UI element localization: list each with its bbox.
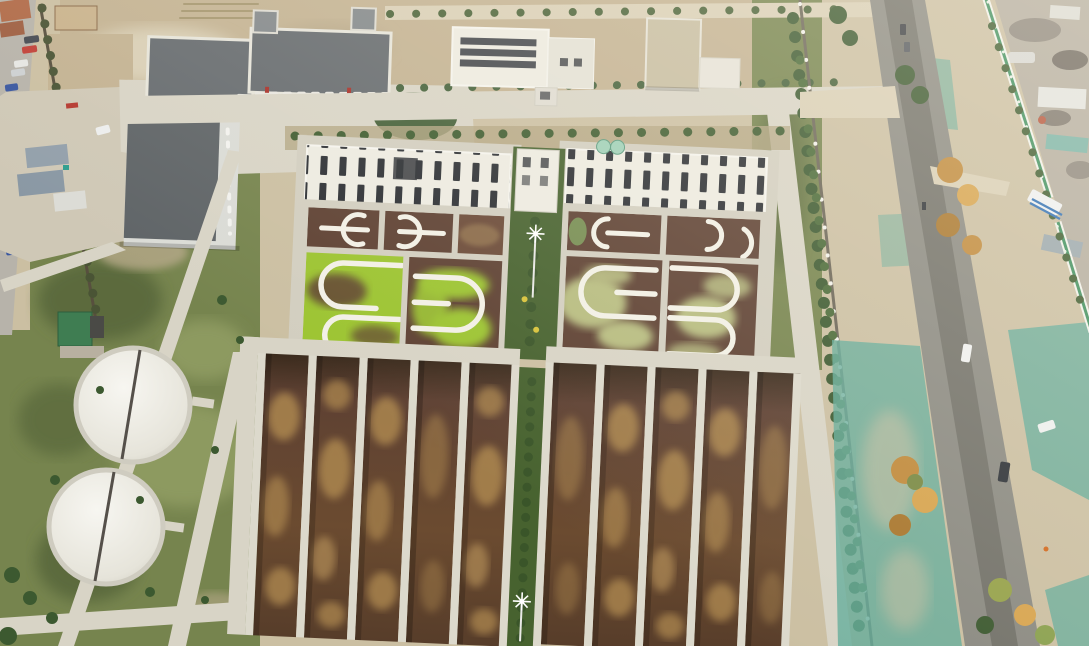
scene-canvas <box>0 0 1089 646</box>
aerial-photo <box>0 0 1089 646</box>
atmospheric-haze <box>0 0 1089 646</box>
